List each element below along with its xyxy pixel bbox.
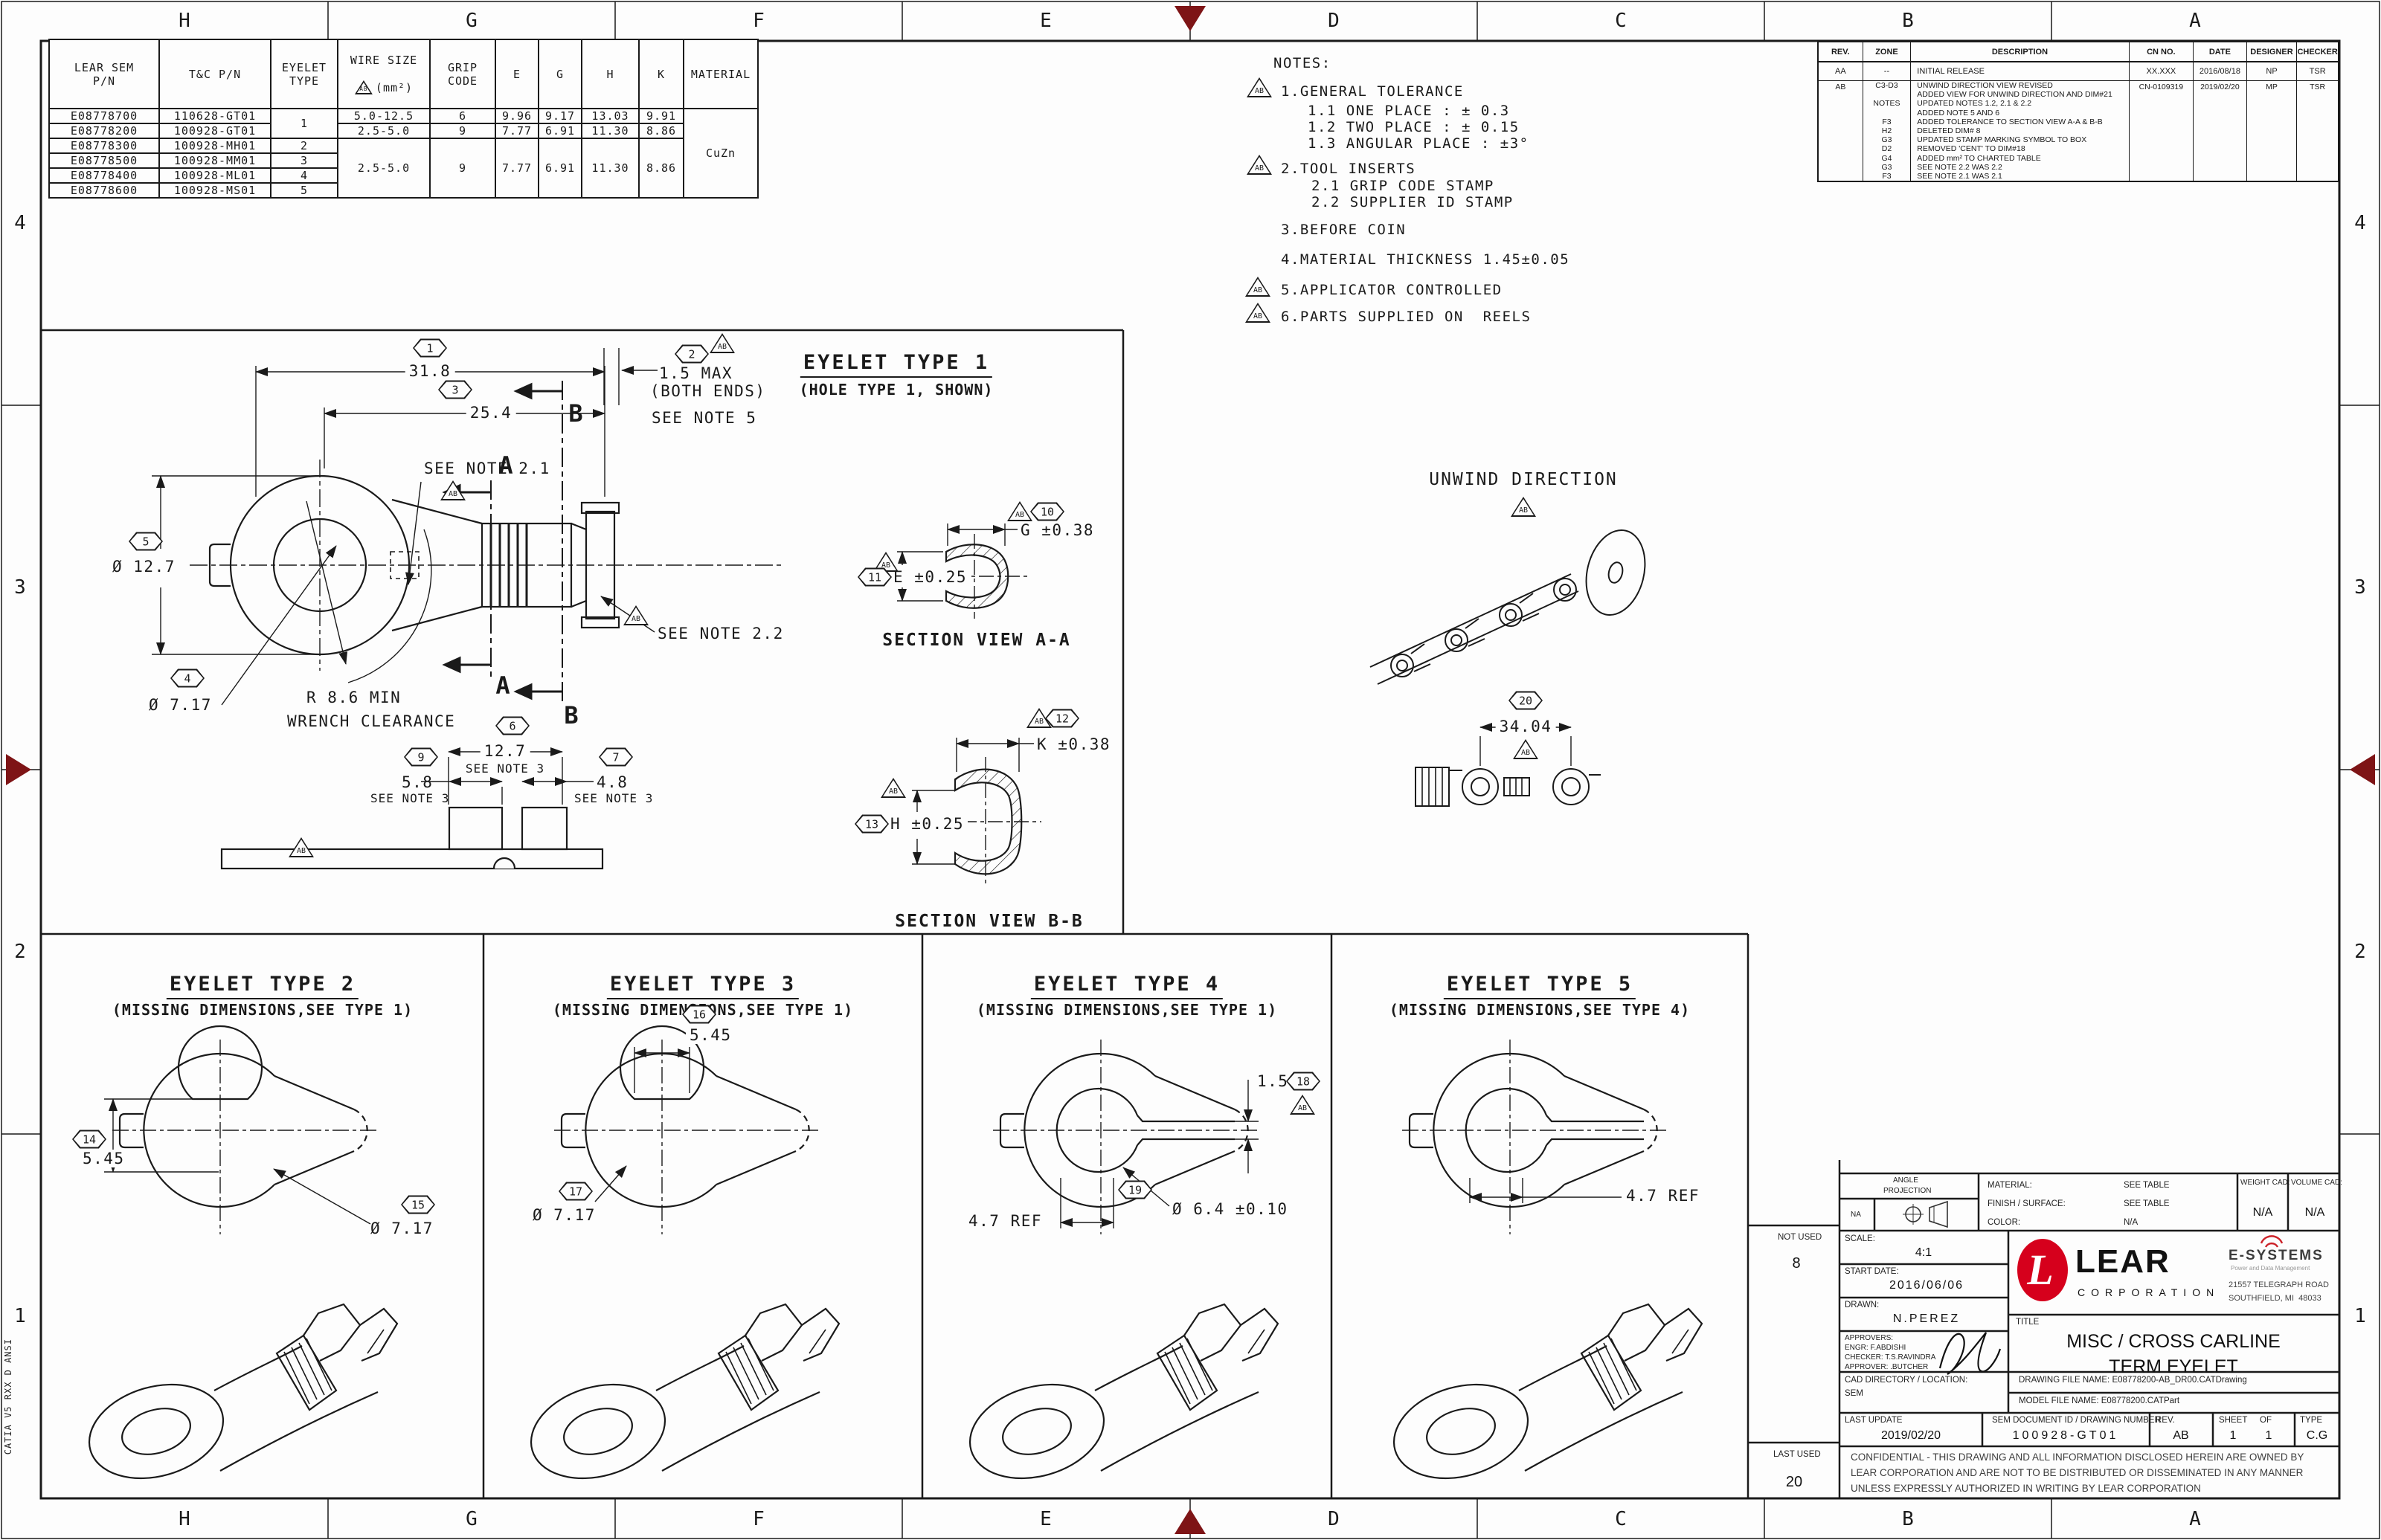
zone-row-left-2: 2 bbox=[14, 941, 26, 963]
start-date-label: START DATE: bbox=[1845, 1267, 1899, 1276]
dim-4-7-ref: 4.7 REF bbox=[1626, 1187, 1700, 1205]
cell-wire-merged: 2.5-5.0 bbox=[338, 138, 430, 198]
of-value: 1 bbox=[2266, 1429, 2272, 1443]
cell-type-1: 1 bbox=[271, 109, 338, 138]
zone-col-bot-c: C bbox=[1615, 1508, 1627, 1530]
type-label: TYPE bbox=[2300, 1416, 2322, 1425]
rev-aa-zone: -- bbox=[1863, 62, 1912, 80]
note-1-2: 1.2 TWO PLACE : ± 0.15 bbox=[1308, 119, 1520, 135]
rev-ab-desc: SEE NOTE 2.1 WAS 2.1 bbox=[1911, 172, 2128, 181]
approver-engr: ENGR: F.ABDISHI bbox=[1845, 1344, 1906, 1352]
last-update-label: LAST UPDATE bbox=[1845, 1416, 1903, 1425]
zone-row-right-4: 4 bbox=[2354, 212, 2366, 234]
rev-ab-desc: DELETED DIM# 8 bbox=[1911, 126, 2128, 135]
see-note-3: SEE NOTE 3 bbox=[574, 791, 653, 805]
table-row: E08778200 100928-GT01 2.5-5.0 9 7.77 6.9… bbox=[49, 123, 758, 138]
rev-col-zone: ZONE bbox=[1863, 42, 1912, 61]
cell-type: 3 bbox=[271, 153, 338, 168]
cell-material: CuZn bbox=[684, 109, 758, 198]
revision-row-ab: AB C3-D3 NOTES F3 H2 G3 D2 G4 G3 F3 UNWI… bbox=[1819, 81, 2338, 181]
type4-subtitle: (MISSING DIMENSIONS,SEE TYPE 1) bbox=[977, 1001, 1277, 1019]
col-header-wire-size: WIRE SIZE AB (mm²) bbox=[338, 39, 430, 109]
center-marker-bottom-icon bbox=[1175, 1509, 1206, 1534]
see-note-3: SEE NOTE 3 bbox=[466, 761, 544, 776]
rev-ab-zone: G3 bbox=[1863, 135, 1911, 144]
section-view-aa-label: SECTION VIEW A-A bbox=[882, 631, 1071, 650]
last-update-value: 2019/02/20 bbox=[1881, 1429, 1941, 1443]
rev-ab-zone: NOTES bbox=[1863, 99, 1911, 108]
rev-ab-zone: D2 bbox=[1863, 144, 1911, 153]
cell-tc: 100928-MH01 bbox=[159, 138, 271, 153]
confidential-line-3: UNLESS EXPRESSLY AUTHORIZED IN WRITING B… bbox=[1851, 1483, 2201, 1494]
rev-aa-rev: AA bbox=[1819, 62, 1863, 80]
zone-row-left-1: 1 bbox=[14, 1305, 26, 1327]
note-1: 1.GENERAL TOLERANCE bbox=[1281, 83, 1464, 100]
dim-e: E ±0.25 bbox=[890, 568, 971, 586]
dim-dia-12-7: Ø 12.7 bbox=[109, 558, 179, 576]
last-used-value: 20 bbox=[1786, 1474, 1802, 1491]
center-marker-left-icon bbox=[6, 754, 31, 785]
rev-ab-date: 2019/02/20 bbox=[2194, 81, 2247, 181]
sheet-value: 1 bbox=[2230, 1429, 2237, 1443]
material-label: MATERIAL: bbox=[1988, 1181, 2032, 1190]
not-used-label: NOT USED bbox=[1778, 1233, 1822, 1242]
approvers-label: APPROVERS: bbox=[1845, 1334, 1893, 1342]
rev-label: REV. bbox=[2156, 1416, 2175, 1425]
center-marker-right-icon bbox=[2350, 754, 2375, 785]
cell-h: 13.03 bbox=[582, 109, 639, 123]
dim-25-4: 25.4 bbox=[466, 404, 516, 422]
dim-4-8: 4.8 bbox=[597, 773, 628, 791]
catia-version-label: CATIA V5 RXX D ANSI bbox=[3, 1338, 13, 1454]
scale-value: 4:1 bbox=[1915, 1246, 1932, 1260]
scale-label: SCALE: bbox=[1845, 1234, 1875, 1243]
cell-e: 7.77 bbox=[495, 123, 539, 138]
finish-label: FINISH / SURFACE: bbox=[1988, 1199, 2066, 1208]
zone-col-top-c: C bbox=[1615, 10, 1627, 32]
weight-cad-label: WEIGHT CAD: bbox=[2240, 1179, 2290, 1187]
rev-ab-desc: UNWIND DIRECTION VIEW REVISED bbox=[1911, 81, 2128, 90]
see-note-2-2: SEE NOTE 2.2 bbox=[658, 625, 784, 642]
cell-tc: 100928-MM01 bbox=[159, 153, 271, 168]
zone-col-bot-b: B bbox=[1902, 1508, 1914, 1530]
dim-34-04: 34.04 bbox=[1496, 718, 1556, 735]
cell-e: 9.96 bbox=[495, 109, 539, 123]
wrench-clearance-1: R 8.6 MIN bbox=[306, 689, 401, 706]
type3-title: EYELET TYPE 3 bbox=[607, 973, 799, 999]
esystems-logo: E-SYSTEMS bbox=[2229, 1248, 2324, 1264]
rev-ab-desc: ADDED mm² TO CHARTED TABLE bbox=[1911, 154, 2128, 163]
drawn-value: N.PEREZ bbox=[1893, 1312, 1960, 1326]
lear-corporation-word: CORPORATION bbox=[2078, 1286, 2220, 1298]
dim-dia-7-17: Ø 7.17 bbox=[149, 696, 212, 714]
drawing-linework bbox=[0, 0, 2381, 1540]
revision-header: REV. ZONE DESCRIPTION CN NO. DATE DESIGN… bbox=[1819, 42, 2338, 62]
doc-id-value: 100928-GT01 bbox=[2013, 1429, 2119, 1443]
finish-value: SEE TABLE bbox=[2124, 1199, 2170, 1208]
col-header-tc-pn: T&C P/N bbox=[159, 39, 271, 109]
rev-ab-desc: ADDED NOTE 5 AND 6 bbox=[1911, 109, 2128, 117]
col-header-e: E bbox=[495, 39, 539, 109]
cell-grip-merged: 9 bbox=[430, 138, 495, 198]
sheet-label: SHEET bbox=[2219, 1416, 2247, 1425]
table-row: E08778700 110628-GT01 1 5.0-12.5 6 9.96 … bbox=[49, 109, 758, 123]
type2-subtitle: (MISSING DIMENSIONS,SEE TYPE 1) bbox=[112, 1001, 413, 1019]
drawing-sheet: H G F E D C B A H G F E D C B A 4 3 2 1 … bbox=[0, 0, 2381, 1540]
cell-pn: E08778300 bbox=[49, 138, 159, 153]
cell-tc: 100928-ML01 bbox=[159, 168, 271, 183]
zone-col-top-g: G bbox=[466, 10, 478, 32]
zone-col-bot-d: D bbox=[1328, 1508, 1340, 1530]
rev-col-rev: REV. bbox=[1819, 42, 1863, 61]
cell-pn: E08778700 bbox=[49, 109, 159, 123]
see-note-2-1: SEE NOTE 2.1 bbox=[424, 460, 550, 477]
cell-g: 9.17 bbox=[539, 109, 582, 123]
rev-col-cn: CN NO. bbox=[2130, 42, 2194, 61]
angle-na: NA bbox=[1851, 1211, 1861, 1219]
rev-ab-zone: H2 bbox=[1863, 126, 1911, 135]
revision-table: REV. ZONE DESCRIPTION CN NO. DATE DESIGN… bbox=[1817, 41, 2339, 182]
cell-grip: 6 bbox=[430, 109, 495, 123]
dim-5-45: 5.45 bbox=[686, 1026, 736, 1044]
zone-col-top-f: F bbox=[753, 10, 765, 32]
note-2-1: 2.1 GRIP CODE STAMP bbox=[1311, 178, 1494, 194]
table-row: E08778300 100928-MH01 2 2.5-5.0 9 7.77 6… bbox=[49, 138, 758, 153]
cell-h: 11.30 bbox=[582, 123, 639, 138]
see-note-3: SEE NOTE 3 bbox=[370, 791, 449, 805]
esystems-address-2: SOUTHFIELD, MI 48033 bbox=[2229, 1294, 2321, 1303]
zone-col-top-b: B bbox=[1902, 10, 1914, 32]
weight-cad-value: N/A bbox=[2253, 1206, 2273, 1220]
note-1-3: 1.3 ANGULAR PLACE : ±3° bbox=[1308, 135, 1529, 152]
rev-value: AB bbox=[2173, 1429, 2188, 1443]
dim-dia-7-17: Ø 7.17 bbox=[533, 1206, 596, 1224]
note-1-1: 1.1 ONE PLACE : ± 0.3 bbox=[1308, 103, 1510, 119]
col-header-h: H bbox=[582, 39, 639, 109]
rev-ab-zone: F3 bbox=[1863, 172, 1911, 181]
rev-ab-desc: ADDED TOLERANCE TO SECTION VIEW A-A & B-… bbox=[1911, 117, 2128, 126]
zone-row-right-3: 3 bbox=[2354, 576, 2366, 599]
dim-4-7-ref: 4.7 REF bbox=[968, 1212, 1042, 1230]
type5-title: EYELET TYPE 5 bbox=[1444, 973, 1636, 999]
drawing-title-1: MISC / CROSS CARLINE bbox=[2066, 1331, 2281, 1353]
dim-1-5: 1.5 bbox=[1257, 1072, 1288, 1090]
cell-wire: 5.0-12.5 bbox=[338, 109, 430, 123]
revision-row-aa: AA -- INITIAL RELEASE XX.XXX 2016/08/18 … bbox=[1819, 62, 2338, 81]
cell-grip: 9 bbox=[430, 123, 495, 138]
zone-col-bot-g: G bbox=[466, 1508, 478, 1530]
cell-tc: 100928-MS01 bbox=[159, 183, 271, 198]
drawing-file-name: DRAWING FILE NAME: E08778200-AB_DR00.CAT… bbox=[2019, 1376, 2247, 1385]
zone-col-top-e: E bbox=[1040, 10, 1052, 32]
dim-h: H ±0.25 bbox=[887, 815, 968, 833]
rev-ab-desc: ADDED VIEW FOR UNWIND DIRECTION AND DIM#… bbox=[1911, 90, 2128, 99]
angle-label-2: PROJECTION bbox=[1883, 1187, 1931, 1195]
cell-g: 6.91 bbox=[539, 123, 582, 138]
volume-cad-label: VOLUME CAD: bbox=[2291, 1179, 2342, 1187]
zone-col-top-d: D bbox=[1328, 10, 1340, 32]
rev-ab-zone: F3 bbox=[1863, 117, 1911, 126]
rev-aa-desc: INITIAL RELEASE bbox=[1911, 62, 2129, 80]
rev-ab-desc: UPDATED STAMP MARKING SYMBOL TO BOX bbox=[1911, 135, 2128, 144]
zone-col-bot-a: A bbox=[2189, 1508, 2201, 1530]
note-3: 3.BEFORE COIN bbox=[1281, 222, 1406, 238]
cell-pn: E08778500 bbox=[49, 153, 159, 168]
section-cut-b-bottom: B bbox=[564, 701, 578, 729]
rev-col-description: DESCRIPTION bbox=[1911, 42, 2129, 61]
section-cut-a-top: A bbox=[498, 451, 512, 480]
dim-g: G ±0.38 bbox=[1021, 521, 1094, 539]
lear-logo-word: LEAR bbox=[2075, 1243, 2170, 1280]
drawing-title-2: TERM EYELET bbox=[2109, 1356, 2238, 1378]
zone-col-bot-f: F bbox=[753, 1508, 765, 1530]
section-cut-b-top: B bbox=[568, 399, 582, 428]
wrench-clearance-2: WRENCH CLEARANCE bbox=[287, 712, 455, 730]
zone-row-left-4: 4 bbox=[14, 212, 26, 234]
esystems-address-1: 21557 TELEGRAPH ROAD bbox=[2229, 1280, 2329, 1289]
col-header-grip-code: GRIP CODE bbox=[430, 39, 495, 109]
rev-ab-zone: C3-D3 bbox=[1863, 81, 1911, 90]
rev-aa-date: 2016/08/18 bbox=[2194, 62, 2247, 80]
rev-ab-zone: G3 bbox=[1863, 163, 1911, 172]
dim-5-45: 5.45 bbox=[79, 1150, 129, 1167]
section-cut-a-bottom: A bbox=[495, 671, 510, 700]
ab-flag-icon: AB bbox=[355, 80, 373, 94]
rev-aa-checker: TSR bbox=[2297, 62, 2338, 80]
note-4: 4.MATERIAL THICKNESS 1.45±0.05 bbox=[1281, 251, 1569, 268]
volume-cad-value: N/A bbox=[2305, 1206, 2325, 1220]
zone-row-left-3: 3 bbox=[14, 576, 26, 599]
rev-ab-cn: CN-0109319 bbox=[2130, 81, 2194, 181]
note-5: 5.APPLICATOR CONTROLLED bbox=[1281, 282, 1503, 298]
type-value: C.G bbox=[2307, 1429, 2327, 1443]
material-value: SEE TABLE bbox=[2124, 1181, 2170, 1190]
not-used-value: 8 bbox=[1792, 1255, 1800, 1272]
dim-12-7: 12.7 bbox=[481, 742, 530, 760]
note-2: 2.TOOL INSERTS bbox=[1281, 161, 1416, 177]
rev-ab-desc: UPDATED NOTES 1.2, 2.1 & 2.2 bbox=[1911, 99, 2128, 108]
cell-pn: E08778200 bbox=[49, 123, 159, 138]
rev-col-date: DATE bbox=[2194, 42, 2247, 61]
rev-ab-rev: AB bbox=[1819, 81, 1863, 181]
rev-ab-designer: MP bbox=[2247, 81, 2298, 181]
cell-e-merged: 7.77 bbox=[495, 138, 539, 198]
cell-pn: E08778600 bbox=[49, 183, 159, 198]
section-view-bb-label: SECTION VIEW B-B bbox=[895, 912, 1084, 931]
last-used-label: LAST USED bbox=[1773, 1450, 1821, 1459]
rev-ab-zone bbox=[1863, 90, 1911, 99]
cell-pn: E08778400 bbox=[49, 168, 159, 183]
esystems-tagline: Power and Data Management bbox=[2231, 1265, 2310, 1272]
model-file-name: MODEL FILE NAME: E08778200.CATPart bbox=[2019, 1396, 2179, 1405]
type1-title: EYELET TYPE 1 bbox=[800, 351, 992, 378]
dim-1-5-both-ends: (BOTH ENDS) bbox=[650, 382, 766, 400]
note-2-2: 2.2 SUPPLIER ID STAMP bbox=[1311, 194, 1514, 210]
zone-col-top-a: A bbox=[2189, 10, 2201, 32]
rev-aa-designer: NP bbox=[2247, 62, 2298, 80]
col-header-k: K bbox=[639, 39, 684, 109]
rev-col-checker: CHECKER bbox=[2297, 42, 2338, 61]
approver-checker: CHECKER: T.S.RAVINDRA bbox=[1845, 1353, 1935, 1362]
title-label: TITLE bbox=[2016, 1318, 2039, 1327]
rev-ab-checker: TSR bbox=[2297, 81, 2338, 181]
doc-id-label: SEM DOCUMENT ID / DRAWING NUMBER bbox=[1992, 1416, 2161, 1425]
type2-title: EYELET TYPE 2 bbox=[167, 973, 359, 999]
cell-k: 9.91 bbox=[639, 109, 684, 123]
rev-aa-cn: XX.XXX bbox=[2130, 62, 2194, 80]
zone-row-right-2: 2 bbox=[2354, 941, 2366, 963]
dim-dia-7-17: Ø 7.17 bbox=[370, 1220, 434, 1237]
notes-title: NOTES: bbox=[1273, 55, 1331, 71]
col-header-material: MATERIAL bbox=[684, 39, 758, 109]
cell-h-merged: 11.30 bbox=[582, 138, 639, 198]
cell-k-merged: 8.86 bbox=[639, 138, 684, 198]
zone-col-bot-e: E bbox=[1040, 1508, 1052, 1530]
rev-ab-zone bbox=[1863, 109, 1911, 117]
color-value: N/A bbox=[2124, 1218, 2138, 1227]
dim-5-8: 5.8 bbox=[402, 773, 433, 791]
col-header-eyelet-type: EYELET TYPE bbox=[271, 39, 338, 109]
dim-31-8: 31.8 bbox=[405, 362, 455, 380]
approver-approver: APPROVER: .BUTCHER bbox=[1845, 1363, 1928, 1371]
rev-ab-desc: REMOVED 'CENT' TO DIM#18 bbox=[1911, 144, 2128, 153]
cell-type: 4 bbox=[271, 168, 338, 183]
note-6: 6.PARTS SUPPLIED ON REELS bbox=[1281, 309, 1531, 325]
rev-ab-desc: SEE NOTE 2.2 WAS 2.2 bbox=[1911, 163, 2128, 172]
cad-directory-label: CAD DIRECTORY / LOCATION: bbox=[1845, 1376, 1967, 1385]
cell-wire: 2.5-5.0 bbox=[338, 123, 430, 138]
start-date-value: 2016/06/06 bbox=[1889, 1279, 1964, 1292]
zone-col-top-h: H bbox=[179, 10, 190, 32]
lear-logo: L bbox=[2017, 1239, 2068, 1301]
col-header-lear-pn: LEAR SEM P/N bbox=[49, 39, 159, 109]
cell-type: 2 bbox=[271, 138, 338, 153]
unwind-direction-label: UNWIND DIRECTION bbox=[1429, 470, 1618, 489]
cell-g-merged: 6.91 bbox=[539, 138, 582, 198]
see-note-5: SEE NOTE 5 bbox=[652, 409, 756, 427]
cell-tc: 110628-GT01 bbox=[159, 109, 271, 123]
confidential-line-2: LEAR CORPORATION AND ARE NOT TO BE DISTR… bbox=[1851, 1467, 2303, 1478]
cad-directory-value: SEM bbox=[1845, 1389, 1863, 1398]
zone-row-right-1: 1 bbox=[2354, 1305, 2366, 1327]
type5-subtitle: (MISSING DIMENSIONS,SEE TYPE 4) bbox=[1389, 1001, 1690, 1019]
dim-k: K ±0.38 bbox=[1037, 735, 1111, 753]
cell-k: 8.86 bbox=[639, 123, 684, 138]
rev-ab-zone: G4 bbox=[1863, 154, 1911, 163]
drawn-label: DRAWN: bbox=[1845, 1301, 1879, 1309]
type1-subtitle: (HOLE TYPE 1, SHOWN) bbox=[800, 381, 994, 399]
dim-1-5-max: 1.5 MAX bbox=[659, 364, 733, 382]
center-marker-top-icon bbox=[1175, 6, 1206, 31]
zone-col-bot-h: H bbox=[179, 1508, 190, 1530]
confidential-line-1: CONFIDENTIAL - THIS DRAWING AND ALL INFO… bbox=[1851, 1452, 2304, 1463]
col-header-g: G bbox=[539, 39, 582, 109]
type4-title: EYELET TYPE 4 bbox=[1031, 973, 1223, 999]
cell-tc: 100928-GT01 bbox=[159, 123, 271, 138]
of-label: OF bbox=[2260, 1416, 2272, 1425]
rev-col-designer: DESIGNER bbox=[2247, 42, 2298, 61]
cell-type: 5 bbox=[271, 183, 338, 198]
dim-dia-6-4: Ø 6.4 ±0.10 bbox=[1172, 1200, 1288, 1218]
color-label: COLOR: bbox=[1988, 1218, 2020, 1227]
angle-label-1: ANGLE bbox=[1893, 1176, 1918, 1185]
part-table: LEAR SEM P/N T&C P/N EYELET TYPE WIRE SI… bbox=[48, 39, 759, 199]
